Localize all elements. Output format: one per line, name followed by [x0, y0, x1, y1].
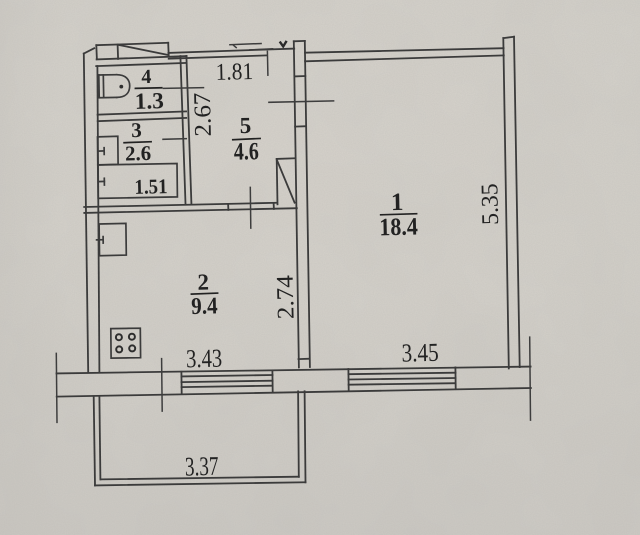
svg-text:3.45: 3.45 [401, 338, 439, 368]
svg-text:18.4: 18.4 [379, 214, 419, 242]
svg-text:4: 4 [141, 66, 151, 88]
svg-text:2.74: 2.74 [273, 275, 300, 320]
svg-text:5.35: 5.35 [477, 183, 504, 225]
svg-text:1: 1 [391, 189, 404, 216]
svg-text:9.4: 9.4 [191, 293, 218, 320]
svg-text:3.37: 3.37 [185, 451, 219, 482]
svg-text:3.43: 3.43 [186, 344, 223, 374]
svg-text:5: 5 [239, 113, 251, 138]
svg-text:4.6: 4.6 [234, 138, 260, 166]
svg-text:1.3: 1.3 [135, 88, 165, 114]
svg-text:2.6: 2.6 [125, 141, 152, 166]
svg-text:1.51: 1.51 [134, 174, 168, 199]
svg-text:3: 3 [131, 118, 142, 142]
svg-text:1.81: 1.81 [215, 59, 253, 86]
svg-text:2: 2 [197, 269, 209, 294]
svg-text:2.67: 2.67 [190, 92, 217, 137]
